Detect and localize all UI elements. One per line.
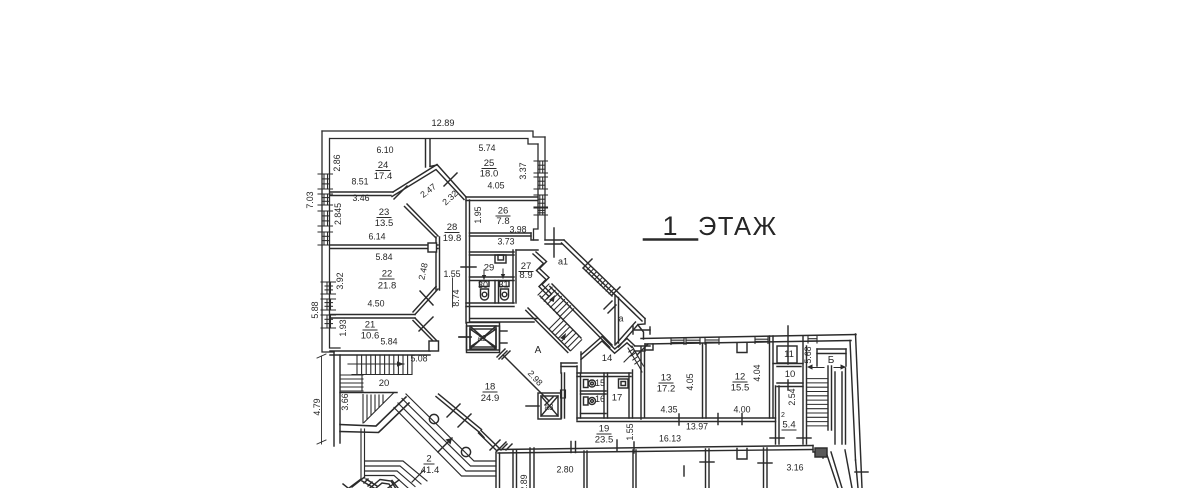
svg-text:16.13: 16.13 xyxy=(659,434,681,444)
svg-text:24.9: 24.9 xyxy=(481,393,500,404)
svg-text:23.5: 23.5 xyxy=(595,435,614,446)
svg-text:2.86: 2.86 xyxy=(332,154,342,171)
svg-text:a3: a3 xyxy=(545,403,554,412)
svg-text:10.6: 10.6 xyxy=(361,331,380,342)
svg-text:5.4: 5.4 xyxy=(782,420,795,431)
svg-text:15: 15 xyxy=(595,378,605,388)
svg-text:25: 25 xyxy=(484,158,495,169)
svg-text:2.47: 2.47 xyxy=(418,181,438,199)
svg-text:2: 2 xyxy=(781,412,785,419)
svg-text:3.16: 3.16 xyxy=(786,463,803,473)
svg-text:Б: Б xyxy=(828,355,835,366)
svg-text:5.08: 5.08 xyxy=(410,354,427,364)
svg-text:26: 26 xyxy=(498,206,509,217)
svg-text:4.35: 4.35 xyxy=(660,405,677,415)
svg-text:13.5: 13.5 xyxy=(375,218,394,229)
svg-text:17: 17 xyxy=(612,393,623,404)
svg-text:4.00: 4.00 xyxy=(733,405,750,415)
svg-text:3.66: 3.66 xyxy=(340,393,350,410)
svg-text:21: 21 xyxy=(365,320,376,331)
svg-text:5.68: 5.68 xyxy=(803,346,813,363)
svg-text:16: 16 xyxy=(595,394,605,404)
svg-text:19.8: 19.8 xyxy=(443,233,462,244)
svg-text:14: 14 xyxy=(602,353,613,364)
svg-text:a2: a2 xyxy=(478,334,487,343)
svg-text:3.37: 3.37 xyxy=(518,162,528,179)
svg-text:13.97: 13.97 xyxy=(686,422,708,432)
svg-text:10: 10 xyxy=(785,369,796,380)
svg-text:30: 30 xyxy=(478,280,488,290)
svg-text:18: 18 xyxy=(485,382,496,393)
svg-text:1.55: 1.55 xyxy=(625,423,635,440)
svg-text:5.84: 5.84 xyxy=(380,337,397,347)
svg-text:8.51: 8.51 xyxy=(351,177,368,187)
svg-text:a1: a1 xyxy=(558,257,568,267)
svg-text:20: 20 xyxy=(379,378,390,389)
svg-text:3.92: 3.92 xyxy=(335,272,345,289)
svg-text:28: 28 xyxy=(447,222,458,233)
svg-text:5.84: 5.84 xyxy=(375,252,392,262)
svg-text:12: 12 xyxy=(735,372,746,383)
svg-text:5.74: 5.74 xyxy=(478,143,495,153)
svg-text:2: 2 xyxy=(426,454,431,465)
svg-text:4.79: 4.79 xyxy=(312,398,322,415)
svg-text:11: 11 xyxy=(784,349,794,360)
svg-text:2.48: 2.48 xyxy=(416,262,429,281)
svg-text:29: 29 xyxy=(484,263,495,274)
svg-text:7.8: 7.8 xyxy=(496,216,509,227)
svg-text:21.8: 21.8 xyxy=(378,281,397,292)
svg-text:22: 22 xyxy=(382,269,393,280)
svg-text:24: 24 xyxy=(378,160,389,171)
svg-text:5.88: 5.88 xyxy=(310,301,320,318)
svg-text:18.0: 18.0 xyxy=(480,169,499,180)
svg-text:a: a xyxy=(618,314,623,324)
svg-text:17.2: 17.2 xyxy=(657,384,676,395)
svg-text:2.54: 2.54 xyxy=(787,388,797,405)
svg-text:17.4: 17.4 xyxy=(374,171,393,182)
svg-text:3.98: 3.98 xyxy=(509,225,526,235)
svg-text:2.98: 2.98 xyxy=(526,368,545,387)
svg-text:31: 31 xyxy=(498,280,508,290)
svg-text:2.80: 2.80 xyxy=(556,465,573,475)
svg-text:19: 19 xyxy=(599,424,610,435)
svg-text:2.89: 2.89 xyxy=(519,474,529,488)
svg-text:13: 13 xyxy=(661,373,672,384)
svg-text:1.95: 1.95 xyxy=(473,206,483,223)
svg-text:4.05: 4.05 xyxy=(685,373,695,390)
svg-text:2.845: 2.845 xyxy=(333,203,343,225)
svg-text:3.46: 3.46 xyxy=(352,193,369,203)
svg-text:6.14: 6.14 xyxy=(368,232,385,242)
svg-text:1.93: 1.93 xyxy=(338,319,348,336)
svg-text:41.4: 41.4 xyxy=(421,465,440,476)
svg-text:23: 23 xyxy=(379,207,390,218)
svg-text:ЭТАЖ: ЭТАЖ xyxy=(698,213,778,241)
svg-text:A: A xyxy=(535,345,542,356)
svg-text:4.04: 4.04 xyxy=(752,364,762,381)
svg-text:1.55: 1.55 xyxy=(443,269,460,279)
svg-text:4.05: 4.05 xyxy=(487,181,504,191)
svg-text:15.5: 15.5 xyxy=(731,383,750,394)
svg-text:1: 1 xyxy=(662,211,677,241)
svg-text:4.50: 4.50 xyxy=(367,299,384,309)
svg-text:12.89: 12.89 xyxy=(432,118,455,128)
svg-text:7.03: 7.03 xyxy=(305,191,315,208)
svg-text:6.10: 6.10 xyxy=(376,145,393,155)
svg-text:3.73: 3.73 xyxy=(497,237,514,247)
